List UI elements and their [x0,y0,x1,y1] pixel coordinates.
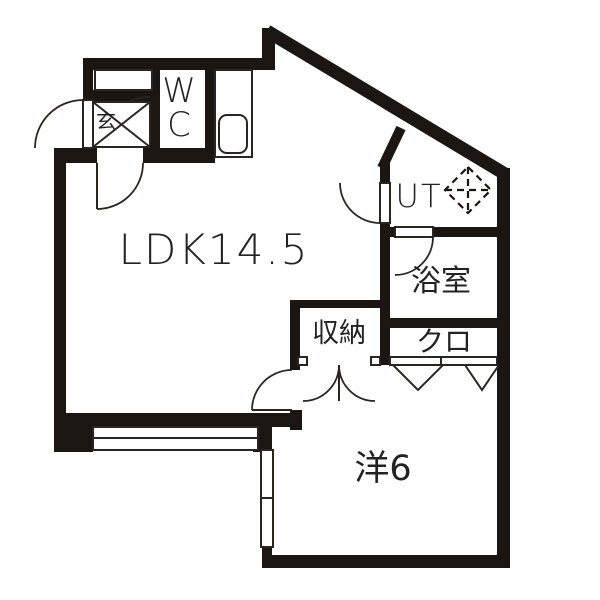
wall-diagonal-fork [382,128,401,168]
floorplan-svg: LDK14.5 玄 W C UT 浴室 クロ 収納 洋6 [0,0,600,600]
wall-wc-right [205,68,215,148]
wall-ut-left [380,163,390,183]
wall-entrance-left [83,58,93,102]
ut-door-arc [340,183,380,223]
west-room-door [252,370,292,410]
washer-icon [445,167,491,213]
wall-ldk-bottom-leftchunk [66,427,93,452]
wall-storage-right [380,300,390,365]
wall-ldk-top-a [54,148,97,163]
label-genkan: 玄 [96,109,116,133]
wall-genkan-inner [93,90,152,102]
closet-folding-doors [390,357,499,390]
label-bathroom: 浴室 [411,264,471,299]
label-ut: UT [396,177,443,215]
bathroom-door-panel [395,227,433,237]
window-west-room [261,450,273,547]
label-wc-c: C [167,105,193,145]
wall-top [83,58,262,70]
window-ldk-south [93,427,258,450]
label-closet: クロ [416,325,472,358]
shoe-cabinet [95,70,152,90]
west-room-door-arc [252,370,292,410]
label-storage: 収納 [312,318,366,349]
wall-west-left-a [262,417,272,450]
wall-west-left-b [262,547,272,568]
ut-door-panel [380,183,390,223]
entrance-door-arc [35,100,83,148]
washbasin-unit [215,70,252,157]
windows [93,427,273,547]
wall-ut-bottom-b [433,227,510,237]
ut-door [340,183,390,223]
entrance-door [35,100,93,148]
label-ldk: LDK14.5 [119,225,310,274]
wall-storage-top [290,300,390,308]
ldk-door-arc [97,163,143,209]
wall-ldk-top-b [143,148,215,163]
wall-left [54,148,66,452]
label-western-room: 洋6 [354,449,411,489]
wall-ut-bottom-a [380,227,395,237]
floorplan-canvas: LDK14.5 玄 W C UT 浴室 クロ 収納 洋6 [0,0,600,600]
storage-double-doors [298,357,380,401]
toilet-sink-icon [219,115,247,153]
wall-bottom [262,555,510,568]
ldk-door [97,163,143,209]
entrance-door-panel [83,100,93,148]
